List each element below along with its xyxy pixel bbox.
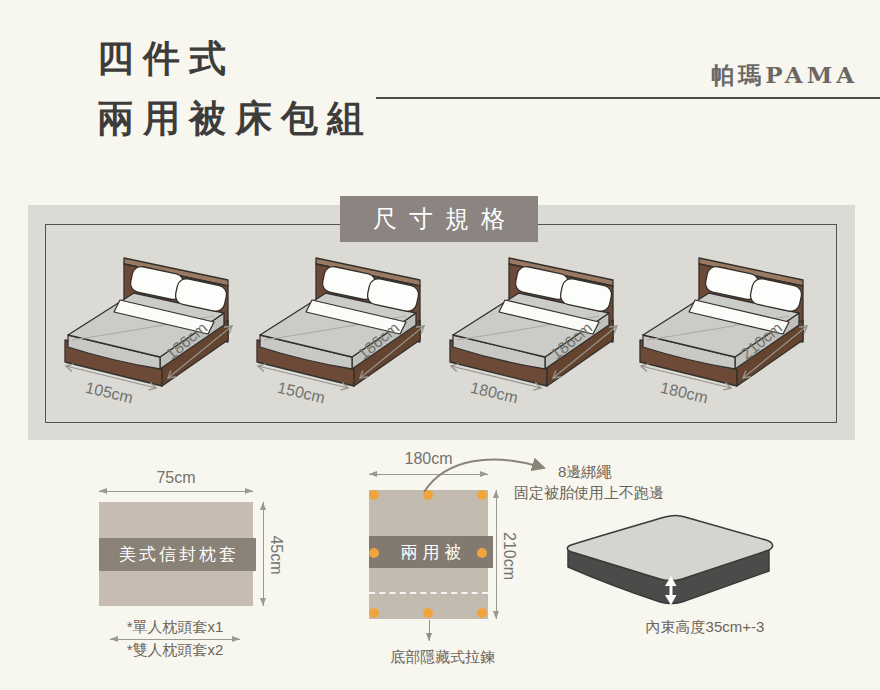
- bed-width-label: 150cm: [276, 379, 327, 406]
- header-divider: [376, 97, 880, 99]
- bed-width-label: 105cm: [84, 379, 135, 406]
- pillowcase-figure: 美式信封枕套: [99, 502, 253, 606]
- bed-illustration-king: 180cm 210cm: [631, 250, 823, 408]
- pillowcase-note-single: *單人枕頭套x1: [95, 618, 255, 637]
- tie-dot: [369, 490, 379, 500]
- duvet-zipper-note: 底部隱藏式拉鍊: [370, 648, 515, 667]
- tie-dot: [477, 608, 487, 618]
- mattress-height-note: 內束高度35cm+-3: [620, 618, 790, 637]
- bed-artwork: [640, 258, 803, 386]
- duvet-height-arrow: [496, 490, 497, 619]
- tie-dot: [477, 548, 487, 558]
- pillowcase-name-band: 美式信封枕套: [99, 538, 256, 571]
- duvet-tie-desc: 固定被胎使用上不跑邊: [514, 484, 664, 503]
- pillowcase-width-label: 75cm: [99, 469, 253, 487]
- bed-artwork: [65, 258, 228, 386]
- product-spec-page: 四件式兩用被床包組 帕瑪PAMA 尺寸規格 105cm 186cm 150cm …: [0, 0, 880, 690]
- mattress-illustration: [553, 503, 783, 621]
- duvet-height-label: 210cm: [500, 526, 518, 586]
- zipper-pointer-arrow: [429, 620, 430, 641]
- zipper-dashed-line: [369, 592, 488, 594]
- title-line1: 四件式: [97, 36, 235, 80]
- bed-artwork: [257, 258, 420, 386]
- bed-width-label: 180cm: [469, 379, 520, 406]
- bed-illustration-double: 150cm 186cm: [248, 250, 440, 408]
- pillowcase-note-double: *雙人枕頭套x2: [95, 641, 255, 660]
- duvet-tie-title: 8邊綁繩: [558, 463, 611, 482]
- title-line2: 兩用被床包組: [97, 96, 373, 140]
- bed-width-label: 180cm: [659, 379, 710, 406]
- tie-dot: [423, 608, 433, 618]
- duvet-figure: 兩用被: [369, 490, 488, 619]
- bed-artwork: [450, 258, 613, 386]
- bed-illustration-queen: 180cm 186cm: [441, 250, 633, 408]
- pillowcase-width-arrow: [99, 491, 253, 492]
- page-title: 四件式兩用被床包組: [97, 28, 373, 148]
- pillowcase-note-arrow: [110, 639, 240, 640]
- bed-illustration-single: 105cm 186cm: [56, 250, 248, 408]
- section-title-badge: 尺寸規格: [340, 196, 538, 242]
- pillowcase-height-label: 45cm: [267, 525, 285, 585]
- tie-dot: [369, 548, 379, 558]
- duvet-name-band: 兩用被: [369, 536, 493, 568]
- pillowcase-height-arrow: [263, 502, 264, 606]
- tie-dot: [369, 608, 379, 618]
- brand-logo: 帕瑪PAMA: [711, 60, 858, 91]
